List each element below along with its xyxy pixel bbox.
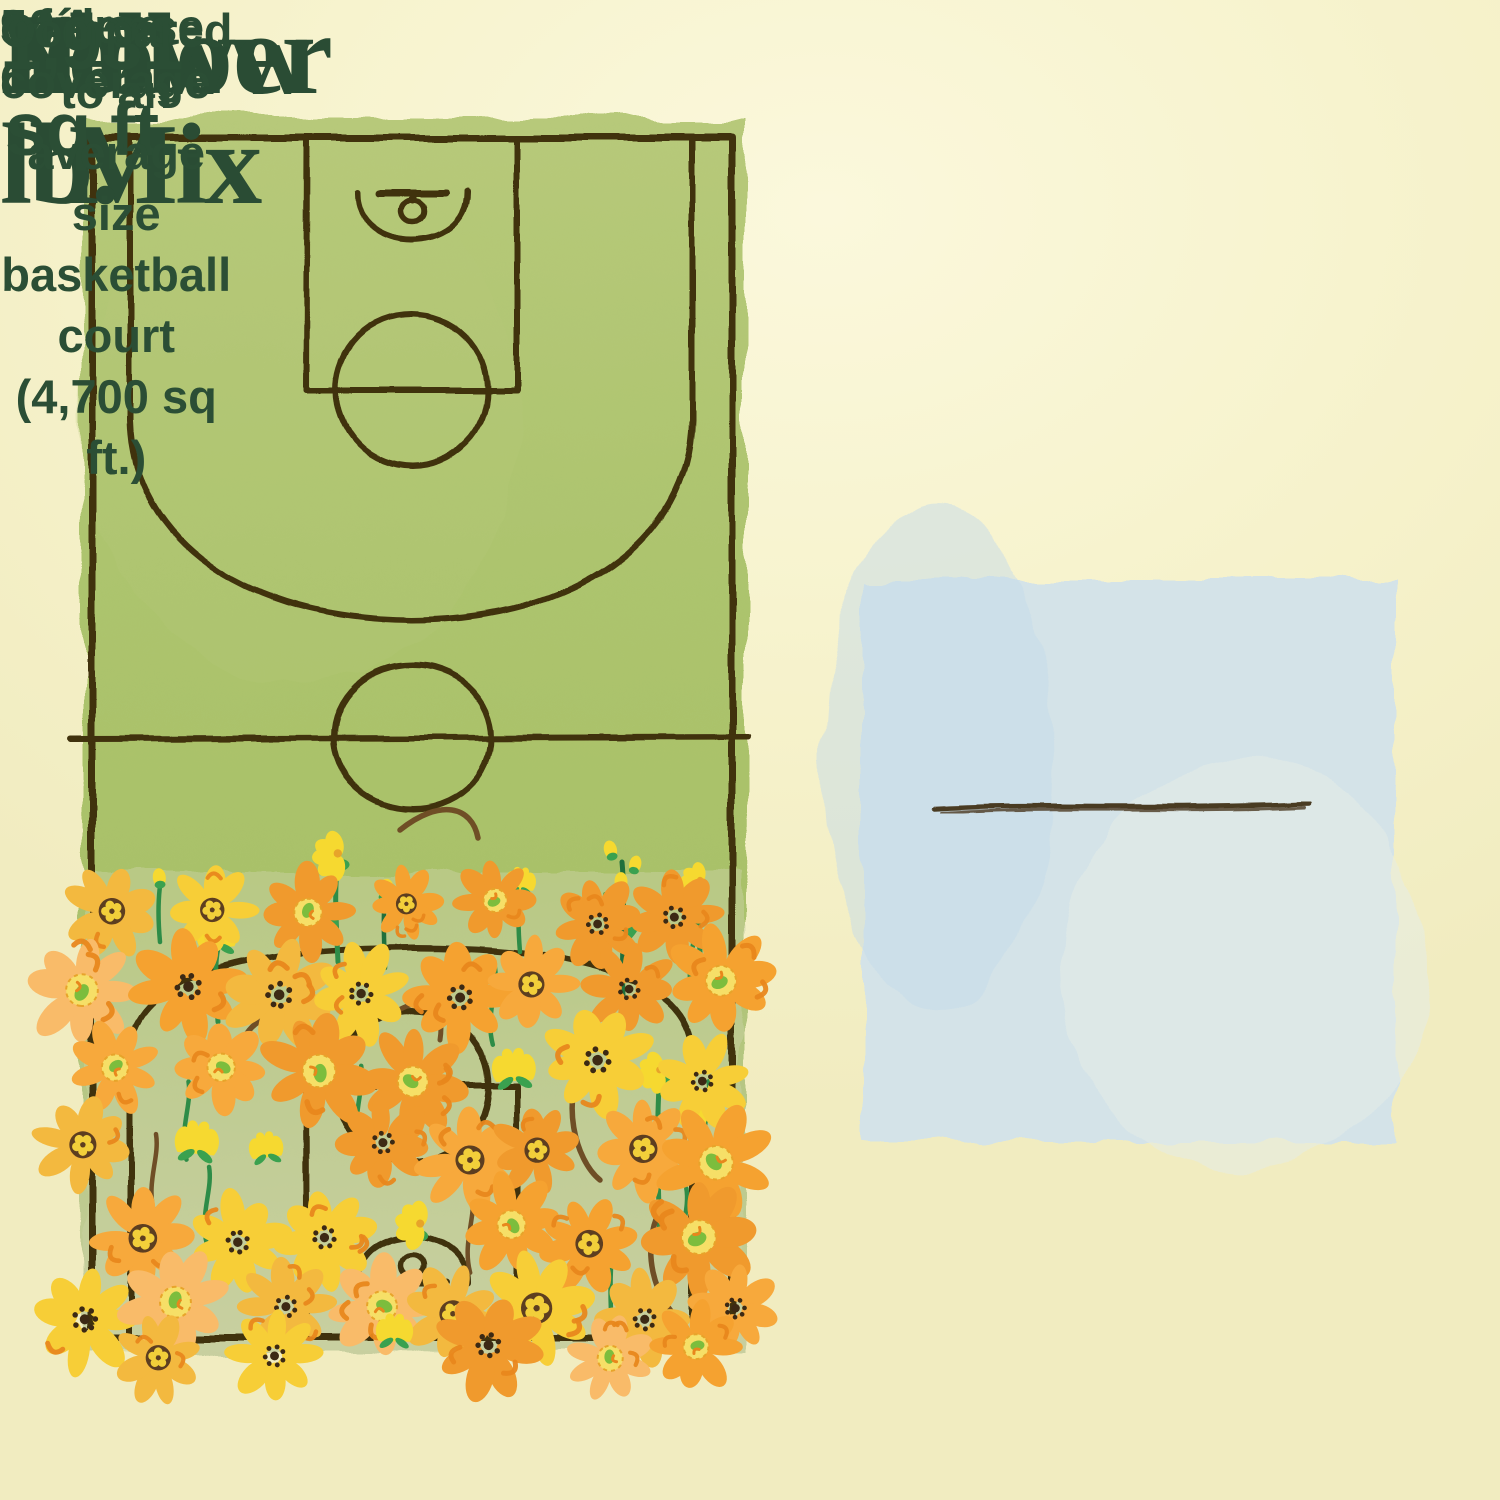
- stats-box-wash: [823, 510, 1430, 1170]
- infographic-root: 94´ 50´ Area Coverage: Yellow Flower Mix…: [0, 0, 1500, 1500]
- comparison-text: Compared to an average size basketball c…: [0, 0, 232, 488]
- flower-stem: [159, 886, 161, 942]
